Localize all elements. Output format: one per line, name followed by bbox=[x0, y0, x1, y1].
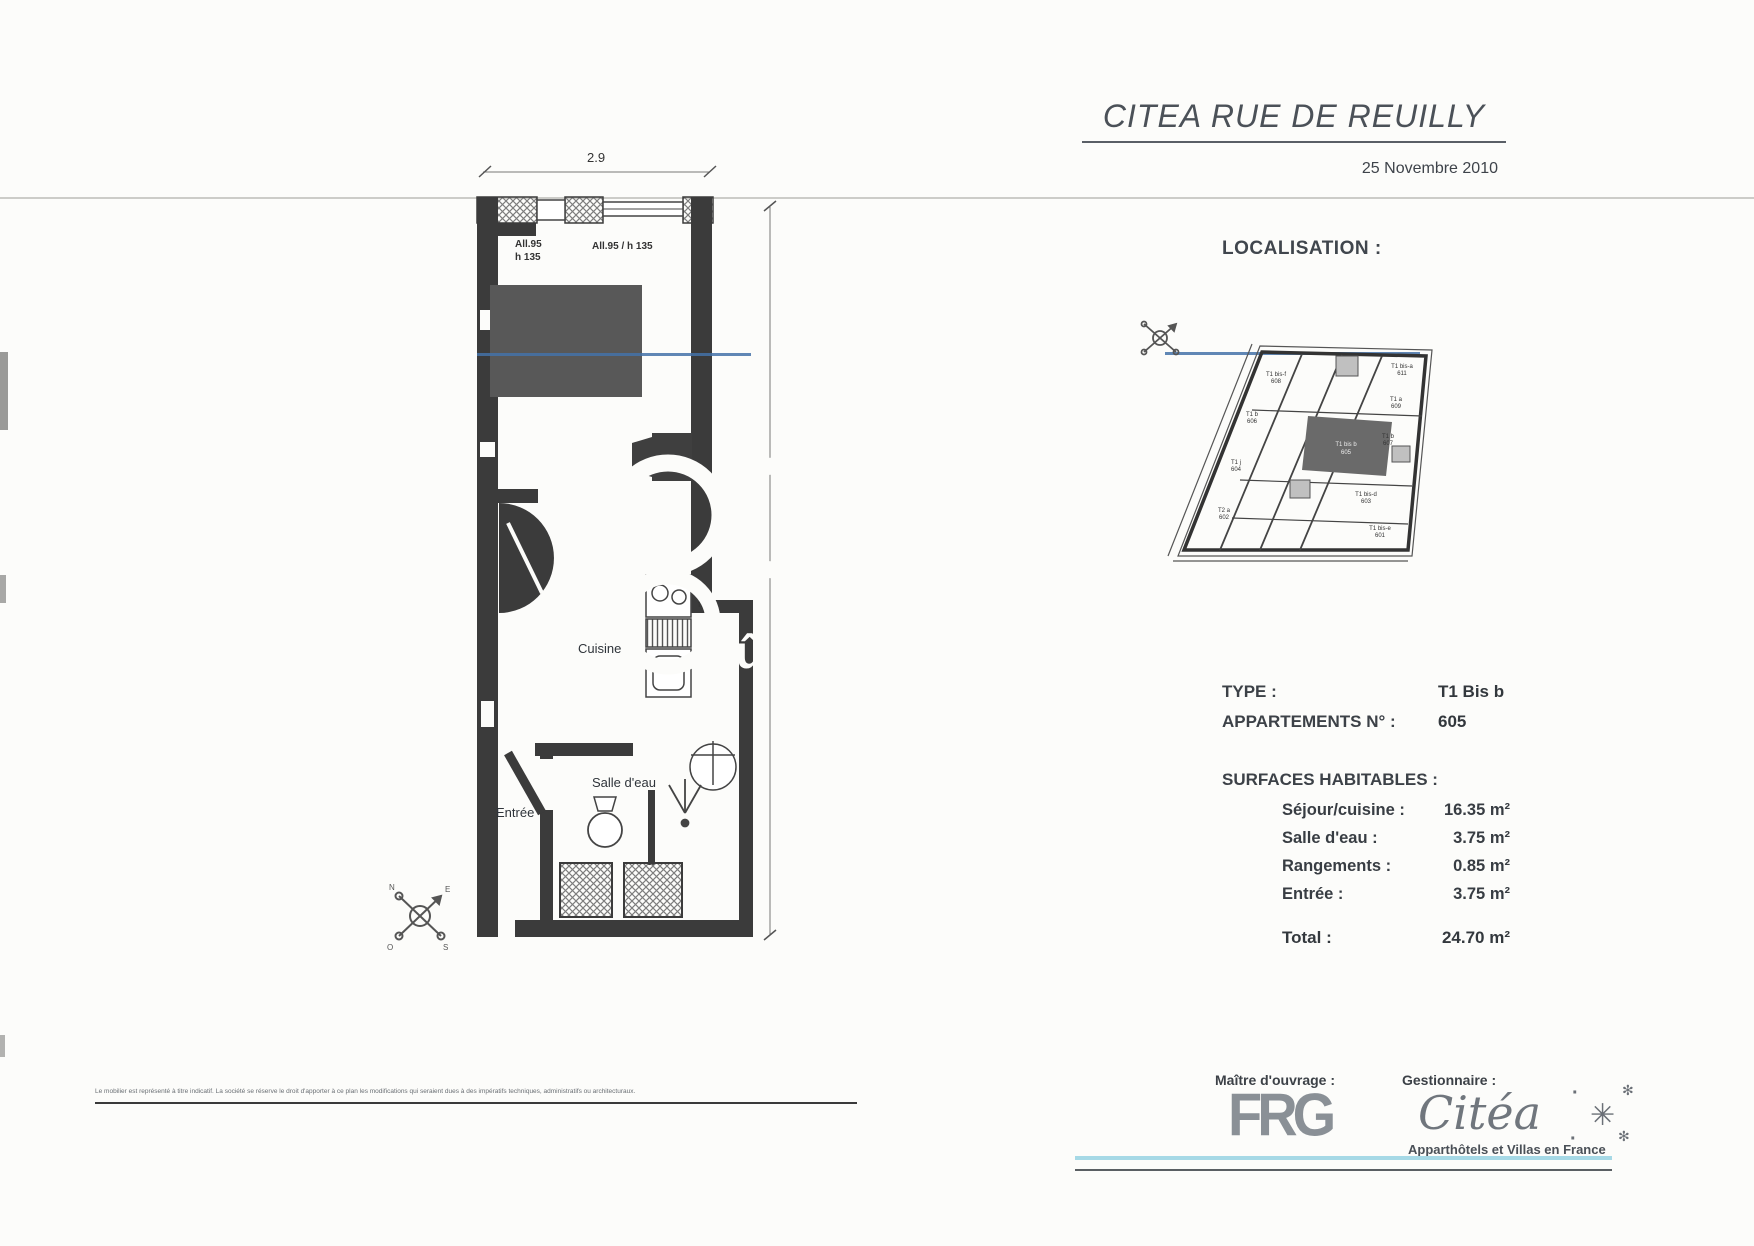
bathroom-door-leaf bbox=[508, 753, 542, 813]
svg-text:T1 bis b: T1 bis b bbox=[1335, 442, 1357, 448]
svg-text:607: 607 bbox=[1383, 441, 1394, 447]
door-lintel bbox=[498, 489, 538, 503]
window-left-label: All.95 bbox=[515, 239, 542, 250]
surface-label: Salle d'eau : bbox=[1282, 824, 1378, 852]
floorplan-drawing: 2.9 9.7 bbox=[380, 145, 780, 965]
svg-text:T1 bis-f: T1 bis-f bbox=[1266, 372, 1286, 378]
dim-width-label: 2.9 bbox=[587, 150, 605, 165]
kitchen-unit bbox=[646, 575, 691, 697]
door-arc bbox=[499, 503, 554, 613]
svg-text:606: 606 bbox=[1247, 419, 1258, 425]
citea-tagline: Apparthôtels et Villas en France bbox=[1408, 1142, 1648, 1157]
svg-text:T2 a: T2 a bbox=[1218, 508, 1231, 514]
toilet bbox=[588, 797, 622, 847]
room-label-cuisine: Cuisine bbox=[578, 641, 621, 656]
citea-logo: Citéa bbox=[1418, 1086, 1541, 1140]
svg-text:T1 bis-e: T1 bis-e bbox=[1369, 526, 1391, 532]
svg-text:603: 603 bbox=[1361, 499, 1372, 505]
compass-o: O bbox=[387, 943, 393, 952]
citea-star-icon: ✻ bbox=[1622, 1082, 1634, 1099]
room-label-entree: Entrée bbox=[496, 805, 534, 820]
windows bbox=[537, 200, 683, 220]
scan-fold-line bbox=[0, 197, 1754, 199]
svg-text:T1 b: T1 b bbox=[1246, 412, 1259, 418]
svg-text:T1 b: T1 b bbox=[1382, 434, 1395, 440]
surface-total-row: Total : 24.70 m² bbox=[1282, 928, 1510, 948]
wall-stub bbox=[498, 223, 536, 236]
citea-dot-icon: · bbox=[1572, 1082, 1579, 1105]
shower-tray-hatched bbox=[560, 863, 612, 917]
svg-text:T1 a: T1 a bbox=[1390, 397, 1403, 403]
document-title: CITEA RUE DE REUILLY bbox=[1082, 98, 1506, 143]
surface-label: Rangements : bbox=[1282, 852, 1391, 880]
bed bbox=[490, 285, 642, 397]
localisation-minimap: T1 bis-f608 T1 bis-a611 T1 a609 T1 b606 … bbox=[1140, 298, 1470, 578]
svg-text:604: 604 bbox=[1231, 467, 1242, 473]
bathroom-left-wall bbox=[540, 810, 553, 937]
bathroom-left-wall bbox=[540, 743, 553, 759]
room-label-salle-eau: Salle d'eau bbox=[592, 775, 656, 790]
window-left-label2: h 135 bbox=[515, 252, 541, 263]
bathroom-inner-partition bbox=[648, 790, 655, 865]
dim-height-label: 9.7 bbox=[773, 563, 780, 578]
svg-text:T1 bis-a: T1 bis-a bbox=[1391, 364, 1413, 370]
citea-star-icon: ✳ bbox=[1590, 1098, 1615, 1133]
kitchen-vent bbox=[646, 619, 691, 647]
storage-hatched bbox=[624, 863, 682, 917]
surface-value: 3.75 m² bbox=[1453, 824, 1510, 852]
top-dimension: 2.9 bbox=[479, 150, 716, 177]
shower-symbol bbox=[669, 779, 701, 827]
surface-row: Entrée : 3.75 m² bbox=[1282, 880, 1510, 908]
washbasin bbox=[690, 741, 736, 790]
scan-blue-line-plan bbox=[477, 353, 751, 356]
window-pier-hatched bbox=[565, 197, 603, 223]
total-value: 24.70 m² bbox=[1442, 928, 1510, 948]
surface-label: Entrée : bbox=[1282, 880, 1343, 908]
svg-text:611: 611 bbox=[1397, 371, 1407, 377]
surface-label: Séjour/cuisine : bbox=[1282, 796, 1405, 824]
disclaimer-text: Le mobilier est représenté à titre indic… bbox=[95, 1088, 860, 1095]
localisation-heading: LOCALISATION : bbox=[1222, 238, 1382, 260]
surface-row: Salle d'eau : 3.75 m² bbox=[1282, 824, 1510, 852]
svg-text:605: 605 bbox=[1341, 450, 1352, 456]
svg-text:T1 bis-d: T1 bis-d bbox=[1355, 492, 1377, 498]
surface-row: Rangements : 0.85 m² bbox=[1282, 852, 1510, 880]
surface-value: 16.35 m² bbox=[1444, 796, 1510, 824]
compass-rose: N E O S bbox=[385, 878, 457, 954]
scanned-floorplan-page: CITEA RUE DE REUILLY 25 Novembre 2010 LO… bbox=[0, 0, 1754, 1246]
tv-furniture bbox=[632, 433, 692, 481]
surface-row: Séjour/cuisine : 16.35 m² bbox=[1282, 796, 1510, 824]
compass-n: N bbox=[389, 883, 395, 892]
svg-text:T1 j: T1 j bbox=[1231, 460, 1241, 466]
total-label: Total : bbox=[1282, 928, 1332, 948]
footer-dark-line bbox=[1075, 1169, 1612, 1171]
document-date: 25 Novembre 2010 bbox=[1082, 160, 1498, 178]
surface-value: 0.85 m² bbox=[1453, 852, 1510, 880]
surface-value: 3.75 m² bbox=[1453, 880, 1510, 908]
right-wall-upper bbox=[691, 197, 712, 612]
scan-edge-smudge bbox=[0, 575, 6, 603]
disclaimer-rule bbox=[95, 1102, 857, 1104]
scan-edge-smudge bbox=[0, 1035, 5, 1057]
plan-note: f.jt. bbox=[698, 599, 710, 609]
footer-cyan-line bbox=[1075, 1156, 1612, 1160]
minimap-compass-icon bbox=[1142, 322, 1179, 355]
svg-text:601: 601 bbox=[1375, 533, 1386, 539]
svg-text:608: 608 bbox=[1271, 379, 1282, 385]
right-wall-lower bbox=[739, 600, 753, 937]
frg-logo: FRG bbox=[1228, 1079, 1331, 1149]
compass-e: E bbox=[445, 885, 450, 894]
surfaces-heading: SURFACES HABITABLES : bbox=[1222, 770, 1438, 790]
svg-text:602: 602 bbox=[1219, 515, 1230, 521]
compass-s: S bbox=[443, 943, 448, 952]
surfaces-table: Séjour/cuisine : 16.35 m² Salle d'eau : … bbox=[1282, 796, 1510, 908]
apartment-number-label: APPARTEMENTS N° : bbox=[1222, 712, 1396, 732]
type-value: T1 Bis b bbox=[1438, 682, 1504, 702]
type-label: TYPE : bbox=[1222, 682, 1277, 702]
scan-edge-smudge bbox=[0, 352, 8, 430]
svg-text:609: 609 bbox=[1391, 404, 1402, 410]
right-dimension: 9.7 bbox=[764, 201, 780, 940]
window-right-label: All.95 / h 135 bbox=[592, 241, 653, 252]
window-small bbox=[537, 200, 565, 220]
apartment-number-value: 605 bbox=[1438, 712, 1466, 732]
